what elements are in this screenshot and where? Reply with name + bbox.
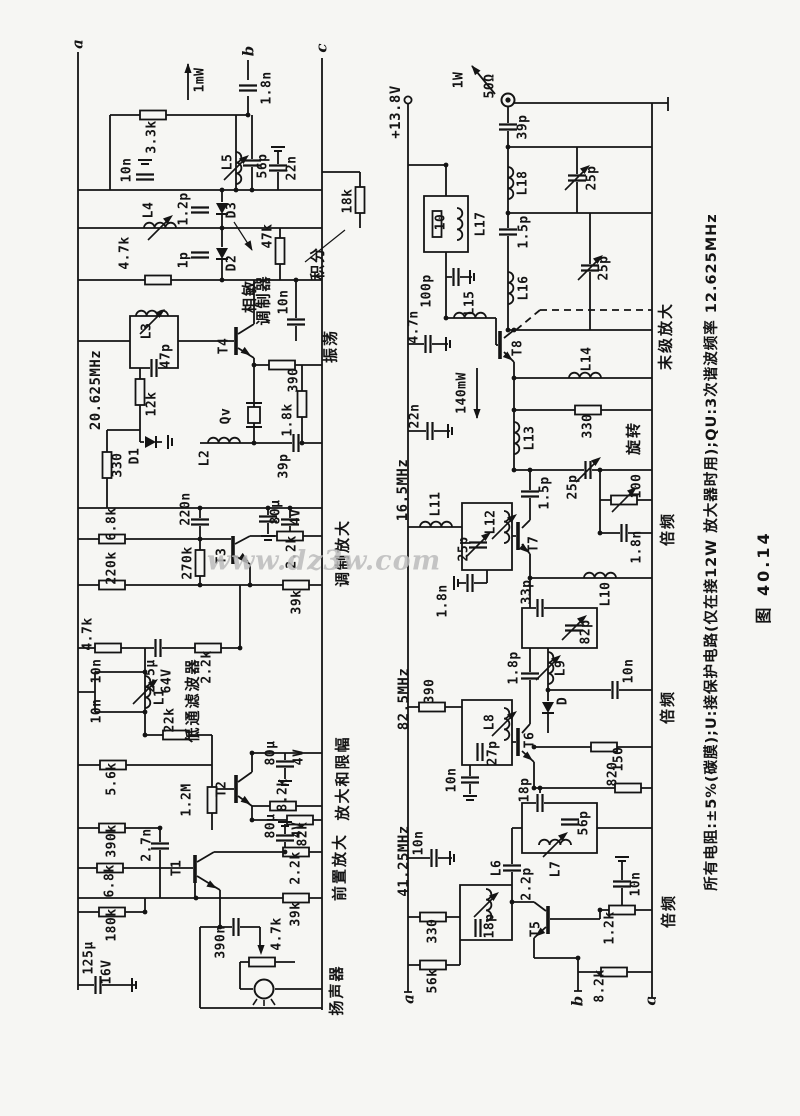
schematic-label: D	[557, 697, 570, 705]
schematic-label: T6	[524, 732, 537, 749]
schematic-label: 20.625MHz	[89, 350, 103, 430]
schematic-label: L6	[491, 860, 504, 877]
schematic-label: 1.8k	[282, 403, 295, 436]
schematic-label: a	[402, 994, 417, 1004]
schematic-label: 22n	[409, 404, 422, 429]
schematic-label: c	[644, 996, 659, 1005]
schematic-label: 4V	[292, 822, 305, 839]
schematic-label: +13.8V	[389, 85, 403, 139]
schematic-label: L16	[518, 276, 531, 301]
schematic-label: 扬声器	[330, 964, 345, 1015]
schematic-label: 低通滤波器	[186, 657, 201, 742]
schematic-label: 1.2k	[604, 911, 617, 944]
schematic-label: 4.7k	[119, 236, 132, 269]
schematic-label: 56p	[257, 154, 270, 179]
schematic-label: 16.5MHz	[396, 459, 410, 522]
schematic-label: 1.8n	[261, 71, 274, 104]
schematic-label: 18p	[484, 914, 497, 939]
schematic-label: 330	[427, 919, 440, 944]
schematic-label: 390k	[106, 824, 119, 857]
schematic-label: 积分	[311, 246, 326, 280]
schematic-label: 10n	[623, 659, 636, 684]
schematic-label: Qv	[220, 408, 233, 425]
schematic-label: 33p	[521, 580, 534, 605]
schematic-label: 56k	[427, 969, 440, 994]
schematic-label: 22n	[286, 156, 299, 181]
schematic-label: 调制器	[257, 274, 272, 325]
schematic-label: 2.7n	[141, 828, 154, 861]
schematic-label: 41.25MHz	[397, 825, 411, 896]
schematic-label: 放大和限幅	[336, 735, 351, 820]
schematic-label: c	[315, 43, 330, 52]
schematic-label: 18p	[519, 778, 532, 803]
schematic-label: 100p	[421, 274, 434, 307]
wire-layer	[78, 52, 668, 1010]
schematic-label: 6.8k	[104, 864, 117, 897]
schematic-label: 5.6k	[106, 762, 119, 795]
watermark: www.dz3w.com	[207, 546, 441, 577]
schematic-label: 4.7k	[82, 617, 95, 650]
schematic-label: 50Ω	[484, 74, 497, 99]
schematic-label: 16V	[101, 960, 114, 985]
schematic-label: 1.5p	[539, 476, 552, 509]
schematic-label: L1	[154, 689, 167, 706]
schematic-label: 390	[288, 368, 301, 393]
schematic-label: 10n	[278, 290, 291, 315]
schematic-label: T8	[512, 340, 525, 357]
schematic-label: 56p	[578, 811, 591, 836]
schematic-label: 1.8n	[631, 530, 644, 563]
schematic-label: 39p	[278, 454, 291, 479]
schematic-label: L7	[550, 861, 563, 878]
schematic-label: 27p	[487, 741, 500, 766]
schematic-label: L14	[581, 347, 594, 372]
schematic-label: b	[571, 996, 586, 1007]
schematic-label: 前置放大	[333, 833, 348, 901]
schematic-label: 1p	[178, 252, 191, 269]
schematic-label: T1	[171, 860, 184, 877]
schematic-label: 倍频	[661, 512, 676, 546]
schematic-label: 4V	[293, 749, 306, 766]
figure-caption: 图 40.14	[756, 530, 772, 623]
schematic-label: 25p	[567, 475, 580, 500]
schematic-label: b	[242, 46, 257, 57]
schematic-label: 1.5p	[518, 215, 531, 248]
schematic-label: 2.2k	[201, 650, 214, 683]
schematic-label: 2.2p	[521, 867, 534, 900]
schematic-label: 390	[424, 679, 437, 704]
schematic-label: L18	[517, 171, 530, 196]
schematic-label: 180k	[106, 908, 119, 941]
schematic-label: 10n	[630, 872, 643, 897]
schematic-label: 10n	[446, 768, 459, 793]
schematic-label: 2.2k	[290, 851, 303, 884]
schematic-label: L8	[484, 714, 497, 731]
schematic-label: L2	[199, 450, 212, 467]
schematic-label: T4	[218, 338, 231, 355]
schematic-label: T2	[216, 781, 229, 798]
schematic-label: 39p	[517, 115, 530, 140]
schematic-label: 4.7n	[408, 310, 421, 343]
schematic-label: 8.2k	[277, 778, 290, 811]
schematic-label: 末级放大	[659, 302, 674, 370]
schematic-label: L4	[143, 202, 156, 219]
schematic-label: 3.3k	[146, 120, 159, 153]
schematic-label: 振荡	[324, 329, 339, 363]
schematic-label: 倍频	[662, 894, 677, 928]
schematic-label: 4V	[290, 509, 303, 526]
schematic-label: 10	[435, 214, 448, 231]
schematic-label: 80μ	[265, 814, 278, 839]
schematic-label: 8.2k	[594, 969, 607, 1002]
schematic-label: 220n	[180, 492, 193, 525]
schematic-label: 25p	[598, 256, 611, 281]
schematic-label: 330	[112, 453, 125, 478]
schematic-label: 140mW	[456, 372, 469, 414]
schematic-label: T7	[528, 536, 541, 553]
schematic-label: 80μ	[265, 741, 278, 766]
footnote: 所有电阻:±5%(碳膜);U:接保护电路(仅在接12W 放大器时用);QU:3次…	[705, 213, 720, 890]
schematic-label: 47p	[160, 344, 173, 369]
schematic-label: 270k	[182, 546, 195, 579]
schematic-label: 125μ	[83, 941, 96, 974]
scanned-schematic-page: a1mWb1.8nc3.3k10nL41.2p4.7k1pL556p22nD3D…	[0, 0, 800, 1116]
schematic-label: 1W	[453, 72, 466, 89]
schematic-label: 10n	[413, 831, 426, 856]
schematic-label: 旋转	[627, 421, 642, 455]
schematic-label: T5	[530, 921, 543, 938]
schematic-label: 25p	[458, 537, 471, 562]
schematic-label: 12k	[146, 392, 159, 417]
schematic-label: L13	[524, 426, 537, 451]
schematic-label: 390n	[215, 925, 228, 958]
schematic-label: D1	[129, 448, 142, 465]
schematic-label: a	[71, 39, 86, 49]
schematic-label: 47k	[262, 224, 275, 249]
schematic-label: L17	[475, 212, 488, 237]
schematic-label: D2	[226, 255, 239, 272]
schematic-label: 820	[607, 762, 620, 787]
schematic-label: 10n	[91, 699, 104, 724]
schematic-label: L5	[222, 154, 235, 171]
schematic-label: 82.5MHz	[397, 668, 411, 731]
schematic-label: 6.8k	[106, 507, 119, 540]
schematic-label: 39k	[291, 590, 304, 615]
schematic-label: D3	[226, 202, 239, 219]
schematic-label: L12	[485, 510, 498, 535]
schematic-label: 1.2p	[178, 192, 191, 225]
schematic-label: L3	[141, 323, 154, 340]
schematic-label: 82p	[580, 620, 593, 645]
schematic-label: 39k	[290, 902, 303, 927]
schematic-label: L11	[430, 492, 443, 517]
schematic-label: 1mW	[194, 68, 207, 93]
schematic-label: L15	[464, 291, 477, 316]
schematic-label: 330	[582, 414, 595, 439]
schematic-label: 4.7k	[271, 917, 284, 950]
schematic-label: 1.8p	[508, 651, 521, 684]
schematic-label: L10	[600, 582, 613, 607]
schematic-label: 10n	[91, 659, 104, 684]
schematic-label: 10n	[121, 158, 134, 183]
schematic-label: 100	[631, 474, 644, 499]
schematic-label: 2.5μ	[145, 659, 158, 692]
schematic-label: L9	[555, 660, 568, 677]
schematic-label: 1.2M	[181, 783, 194, 816]
schematic-label: 1.8n	[437, 584, 450, 617]
schematic-label: 18k	[342, 189, 355, 214]
schematic-label: 220k	[106, 551, 119, 584]
schematic-label: 80μ	[270, 500, 283, 525]
schematic-label: 倍频	[661, 690, 676, 724]
schematic-label: 22k	[164, 708, 177, 733]
schematic-label: 25p	[586, 166, 599, 191]
